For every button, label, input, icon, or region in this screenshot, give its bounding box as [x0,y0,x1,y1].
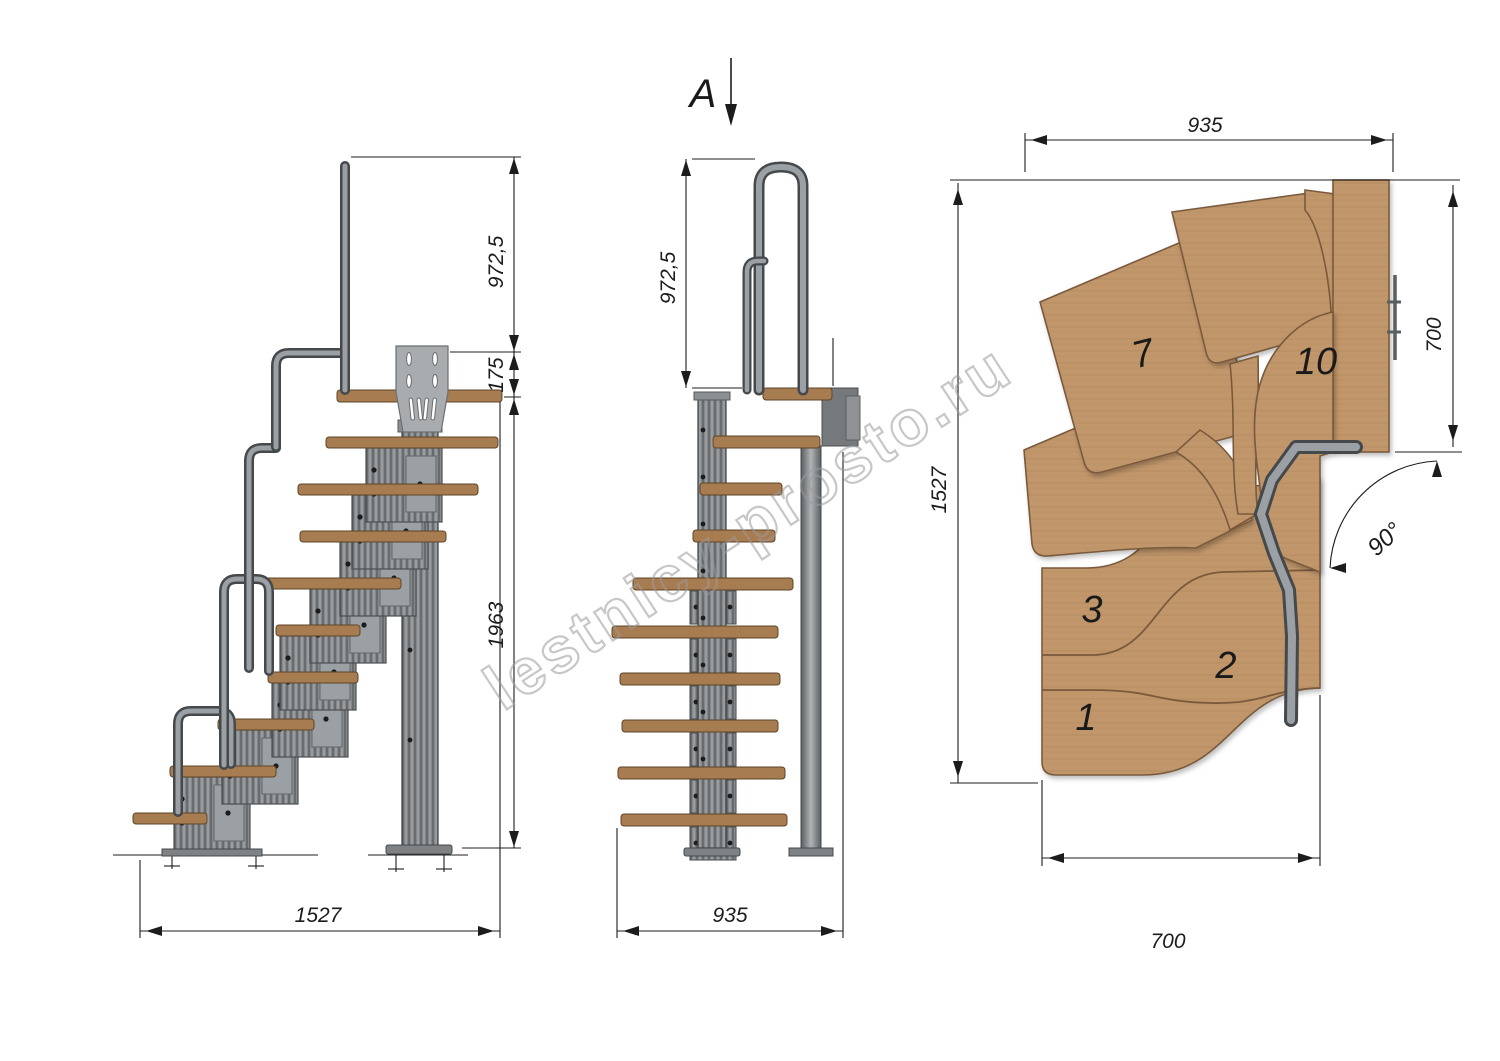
dim-side-plate-drop: 175 [485,357,508,392]
dim-plan-landing-depth: 700 [1423,317,1446,352]
dim-side-rail-height: 972,5 [485,235,508,288]
step-number-2: 2 [1214,645,1236,687]
dim-plan-top-width: 935 [1187,114,1222,137]
rear-column-base [789,848,833,856]
step-number-3: 3 [1081,589,1102,631]
dim-plan-total-length: 1527 [928,465,951,513]
side-elevation-view: 972,5 175 1963 1527 [113,157,521,938]
handrail-front [747,167,803,390]
dim-side-total-run: 1527 [295,904,343,927]
dim-front-rail-height: 972,5 [657,251,680,304]
step-number-10: 10 [1295,341,1337,383]
staircase-technical-drawing: 972,5 175 1963 1527 A [0,0,1500,1061]
plan-view: 1 2 3 7 10 935 1527 700 [928,114,1462,953]
stringer-modules-side [162,448,442,856]
mounting-plate [396,346,448,432]
dim-plan-turn-angle: 90° [1362,517,1407,562]
drawing-page: 972,5 175 1963 1527 A [0,0,1500,1061]
dim-front-total-width: 935 [712,904,747,927]
dim-plan-bottom-width: 700 [1150,930,1185,953]
section-marker: A [688,58,737,126]
section-marker-label: A [688,72,717,116]
step-number-1: 1 [1075,697,1096,739]
plan-landing [1333,180,1389,452]
